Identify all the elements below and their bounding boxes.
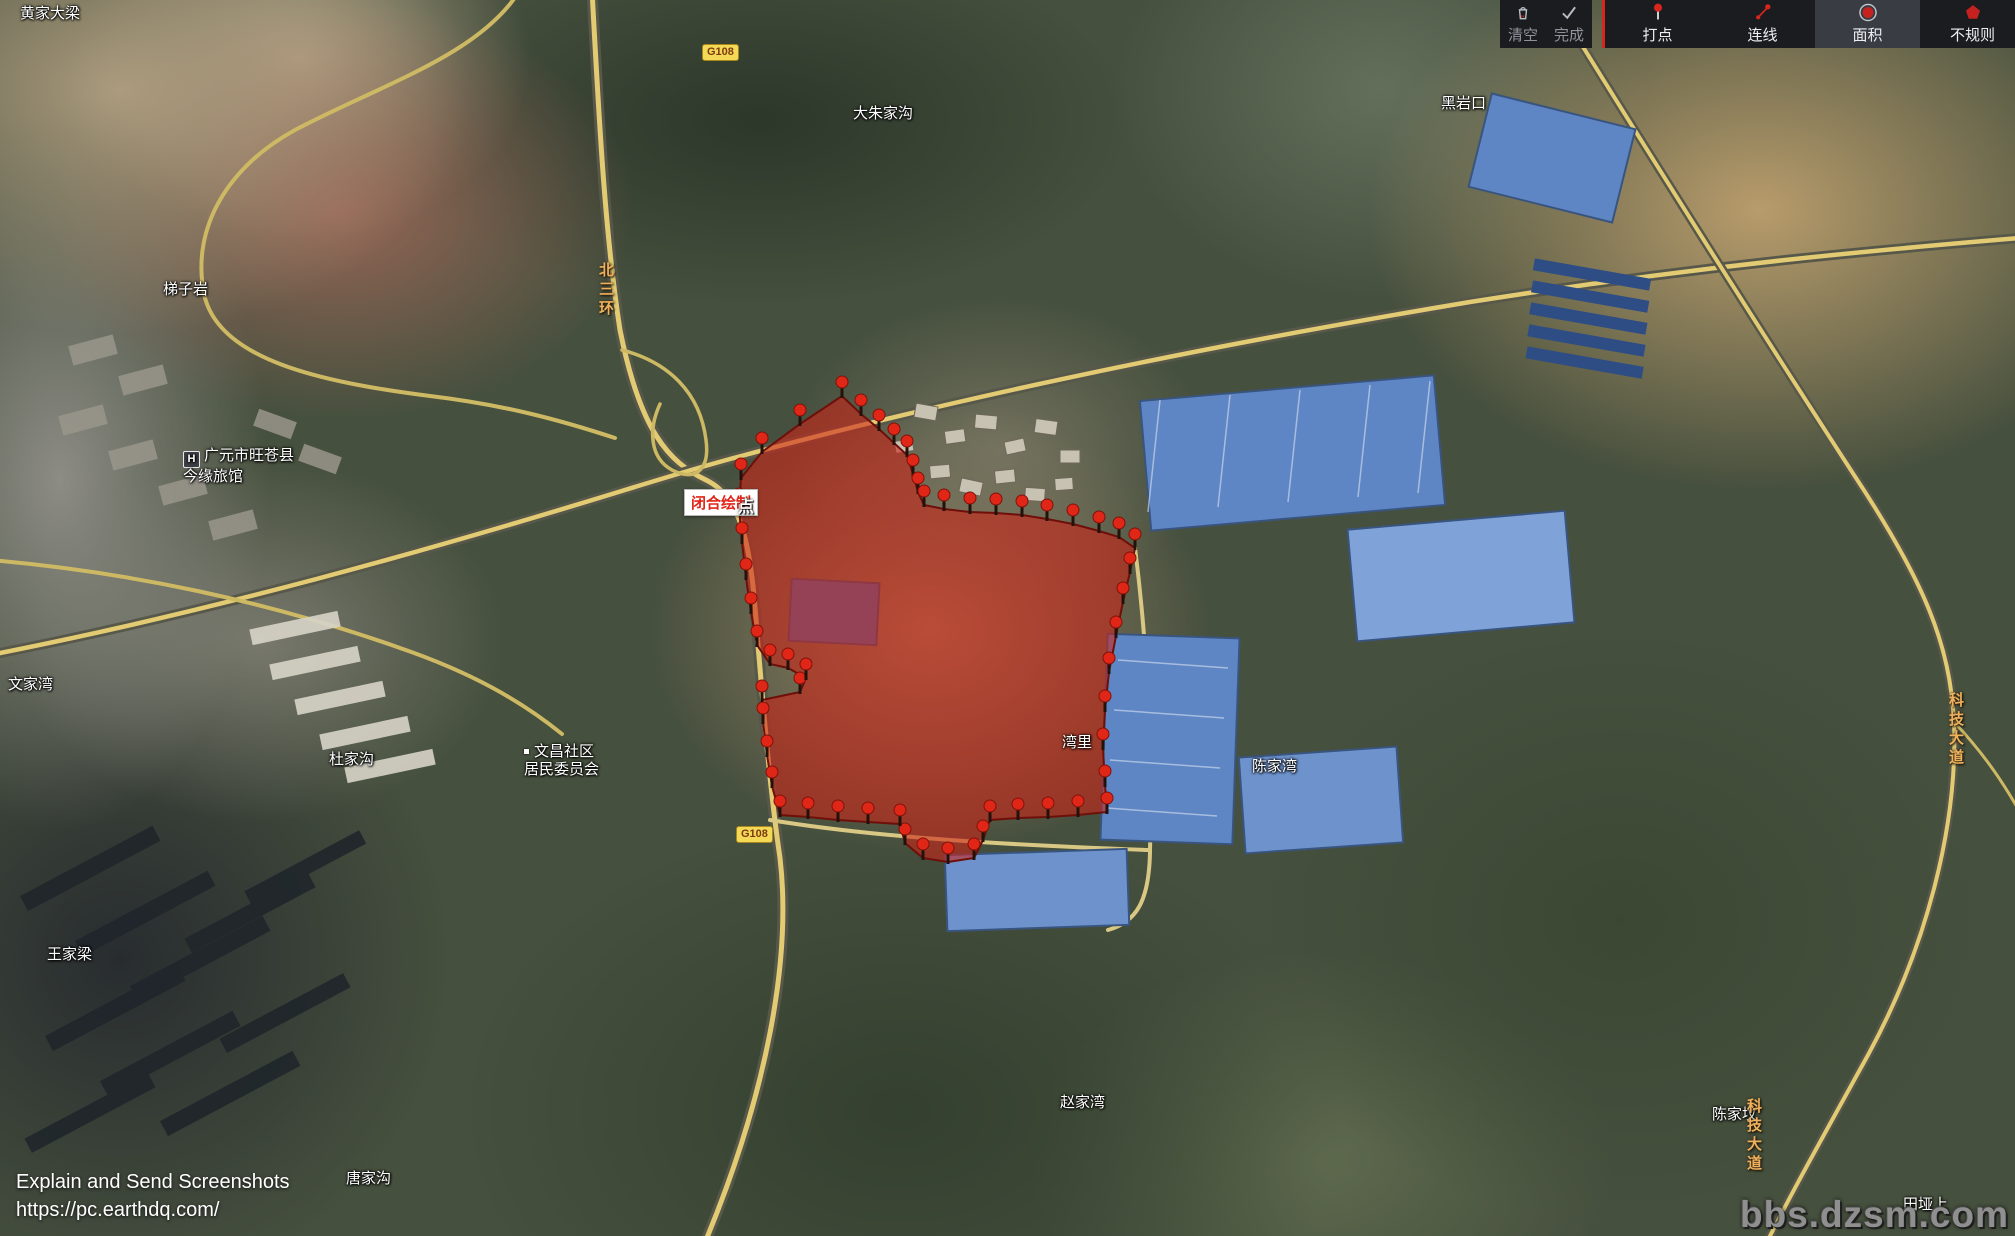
irregular-button[interactable]: 不规则 <box>1920 0 2015 48</box>
clear-label: 清空 <box>1508 24 1538 45</box>
check-icon <box>1558 2 1580 23</box>
map-canvas[interactable] <box>0 0 2015 1236</box>
pentagon-icon <box>1962 2 1984 23</box>
apartment-rows-dark <box>20 826 366 1153</box>
area-button[interactable]: 面积 <box>1815 0 1920 48</box>
irregular-label: 不规则 <box>1950 24 1995 45</box>
mark-point-button[interactable]: 打点 <box>1605 0 1710 48</box>
area-circle-icon <box>1857 2 1879 23</box>
done-button[interactable]: 完成 <box>1546 0 1592 48</box>
toolbar-group-edit: 清空 完成 <box>1500 0 1592 48</box>
apartment-rows-light <box>249 611 435 783</box>
map-label-overlap: 点 <box>738 493 754 517</box>
connect-line-icon <box>1752 2 1774 23</box>
watermark: bbs.dzsm.com <box>1740 1194 2009 1236</box>
toolbar: 清空 完成 打点 连线 <box>1500 0 2015 48</box>
clear-button[interactable]: 清空 <box>1500 0 1546 48</box>
connect-line-button[interactable]: 连线 <box>1710 0 1815 48</box>
trash-icon <box>1512 2 1534 23</box>
mark-point-label: 打点 <box>1642 24 1672 45</box>
credit-text: Explain and Send Screenshots https://pc.… <box>16 1168 290 1224</box>
area-label: 面积 <box>1852 24 1882 45</box>
toolbar-group-tools: 打点 连线 面积 不规则 <box>1602 0 2015 48</box>
city-blocks <box>58 334 342 540</box>
credit-line1: Explain and Send Screenshots <box>16 1168 290 1196</box>
connect-line-label: 连线 <box>1747 24 1777 45</box>
vertex-pin[interactable] <box>990 493 1002 515</box>
pushpin-icon <box>1647 2 1669 23</box>
vertex-pin[interactable] <box>836 376 848 398</box>
credit-line2[interactable]: https://pc.earthdq.com/ <box>16 1196 290 1224</box>
done-label: 完成 <box>1554 24 1584 45</box>
